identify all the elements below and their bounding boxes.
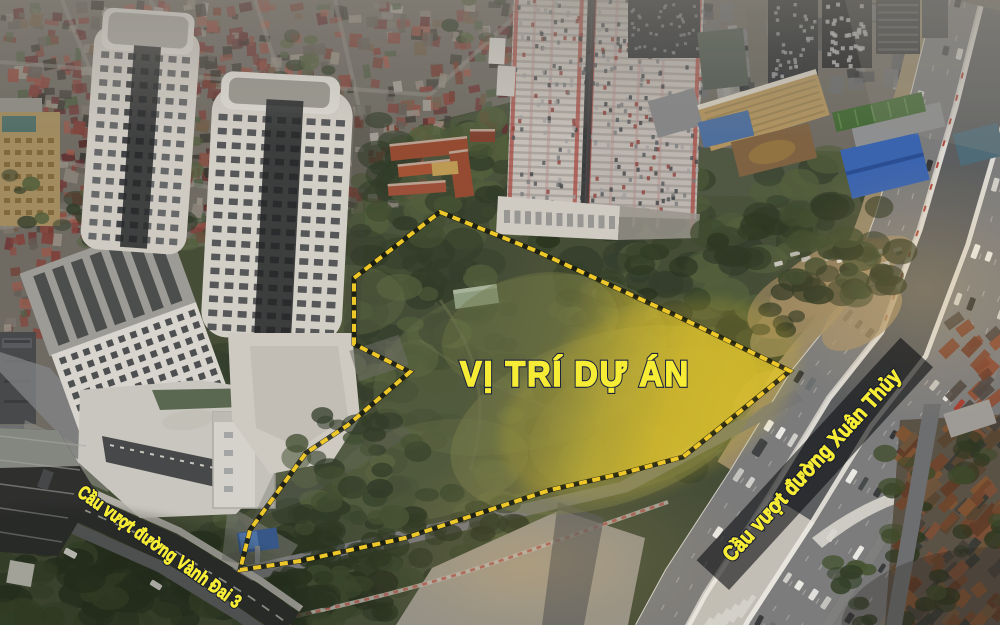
svg-text:VỊ TRÍ DỰ ÁN: VỊ TRÍ DỰ ÁN xyxy=(460,354,690,394)
